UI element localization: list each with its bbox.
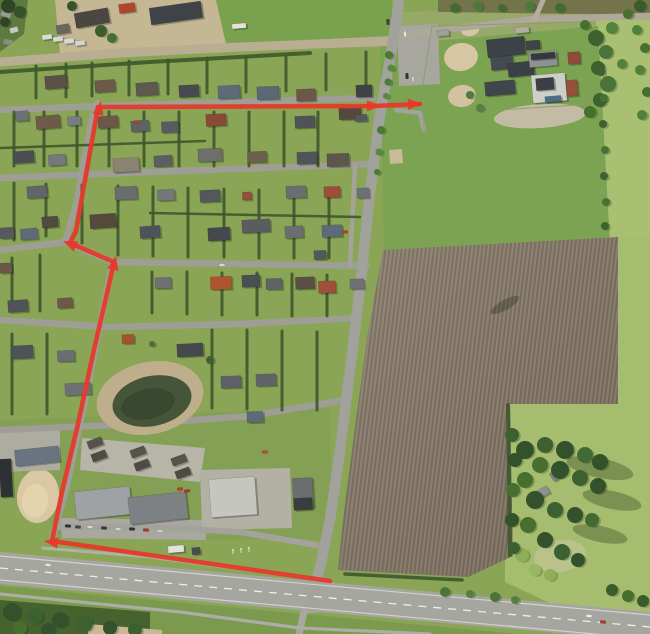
tree (623, 9, 633, 19)
tree (556, 441, 574, 459)
tree (592, 454, 608, 470)
building (266, 278, 282, 290)
building (210, 276, 231, 290)
tree (440, 587, 450, 597)
car (157, 529, 163, 532)
tree (599, 45, 613, 59)
building (242, 192, 251, 200)
tree (95, 25, 107, 37)
building (155, 277, 171, 289)
road-main-road-south (299, 612, 304, 634)
tree (77, 616, 93, 632)
car (45, 563, 51, 566)
building (247, 151, 266, 163)
building (177, 343, 204, 357)
building (242, 219, 271, 233)
building (322, 225, 342, 238)
tree (466, 590, 474, 598)
car (184, 489, 190, 492)
building (90, 213, 117, 229)
car (134, 120, 140, 123)
tree (529, 564, 541, 576)
building (257, 86, 279, 100)
building (208, 227, 231, 241)
tree (597, 68, 605, 76)
building (297, 152, 317, 165)
building (57, 297, 73, 308)
tree (600, 76, 616, 92)
tree (505, 428, 519, 442)
building (221, 376, 241, 389)
tree (511, 596, 519, 604)
tree (3, 603, 21, 621)
building (44, 75, 67, 90)
tree (600, 94, 608, 102)
building (14, 150, 35, 163)
tree (506, 483, 520, 497)
tree (602, 198, 610, 206)
tree (508, 453, 522, 467)
building (247, 411, 263, 423)
building (8, 299, 29, 312)
tree (544, 569, 556, 581)
building (15, 110, 29, 121)
tree (637, 595, 649, 607)
tree (450, 3, 460, 13)
building (200, 189, 221, 202)
car (403, 31, 406, 37)
tree (547, 502, 563, 518)
patch-dirt-square (389, 149, 403, 164)
building (350, 279, 364, 289)
building (324, 186, 340, 198)
tree (567, 507, 583, 523)
building (314, 250, 326, 259)
tree (585, 513, 599, 527)
tree (388, 65, 395, 72)
tree (590, 478, 606, 494)
tree (377, 126, 385, 134)
tree (517, 472, 533, 488)
car (342, 231, 348, 234)
map-viewport (0, 0, 650, 634)
tree (622, 590, 634, 602)
building (113, 157, 140, 172)
car (177, 487, 183, 490)
tree (599, 120, 607, 128)
tree (600, 172, 608, 180)
tree (537, 437, 553, 453)
tree (490, 592, 500, 602)
car (600, 620, 606, 623)
tree (601, 146, 609, 154)
tree (571, 553, 585, 567)
building (566, 80, 578, 97)
building (356, 85, 372, 98)
building (157, 189, 175, 201)
building (35, 114, 60, 129)
flag (240, 548, 242, 550)
tree (149, 341, 155, 347)
building (256, 374, 276, 387)
car (87, 525, 93, 528)
building (48, 154, 66, 166)
tree (635, 65, 645, 75)
building (295, 277, 314, 290)
building (118, 2, 135, 13)
building (67, 116, 81, 126)
building (131, 120, 150, 132)
tree (577, 447, 593, 463)
tree (634, 0, 646, 12)
car (586, 614, 592, 617)
car (386, 19, 389, 25)
building (568, 52, 581, 65)
building (179, 84, 200, 97)
tree (532, 457, 548, 473)
tree (584, 106, 596, 118)
building (218, 85, 241, 99)
tree (554, 544, 570, 560)
aerial-map-canvas[interactable] (0, 0, 650, 634)
tree (640, 43, 650, 53)
building (128, 492, 189, 525)
car (411, 76, 414, 82)
tree (0, 17, 10, 27)
building (192, 547, 201, 555)
tree (206, 356, 214, 364)
building (115, 186, 138, 200)
tree (374, 169, 380, 175)
building (232, 23, 246, 29)
building (355, 114, 367, 122)
tree (52, 612, 68, 628)
flag (232, 549, 234, 551)
building (154, 155, 173, 167)
tree (632, 25, 642, 35)
tree (473, 1, 483, 11)
tree (588, 30, 604, 46)
tree (376, 149, 383, 156)
tree (67, 1, 77, 11)
tree (580, 20, 590, 30)
car (115, 527, 121, 530)
flag (248, 547, 250, 549)
building (484, 80, 515, 97)
tree (551, 461, 569, 479)
building (122, 334, 134, 344)
building (545, 95, 561, 102)
hedge (508, 405, 510, 555)
building (136, 82, 159, 97)
building (286, 186, 306, 199)
building (168, 545, 185, 553)
tree (476, 104, 484, 112)
tree (383, 93, 389, 99)
tree (606, 22, 618, 34)
car (262, 450, 268, 453)
tree (508, 542, 520, 554)
building (0, 227, 14, 239)
tree (505, 513, 519, 527)
tree (601, 222, 609, 230)
car (65, 524, 71, 527)
tree (466, 91, 474, 99)
tree (526, 491, 544, 509)
building (318, 281, 335, 294)
building (206, 113, 227, 126)
car (101, 526, 107, 529)
building (327, 153, 349, 167)
tree (537, 532, 553, 548)
building (242, 275, 260, 288)
tree (107, 33, 117, 43)
building (27, 185, 48, 198)
tree (498, 4, 506, 12)
tree (14, 6, 26, 18)
building (95, 79, 116, 92)
building (526, 40, 541, 50)
tree (606, 584, 618, 596)
building (42, 216, 59, 228)
building (285, 226, 304, 239)
building (198, 148, 223, 162)
building (294, 498, 313, 511)
building (57, 350, 75, 362)
building (295, 116, 315, 129)
building (0, 263, 12, 274)
building (209, 476, 258, 517)
tree (520, 517, 536, 533)
building (536, 77, 555, 91)
tree (617, 59, 627, 69)
car (219, 264, 225, 267)
tree (385, 79, 392, 86)
building (74, 486, 133, 520)
car (75, 525, 81, 528)
building (98, 115, 119, 128)
tree (27, 608, 43, 624)
car (129, 527, 135, 530)
tree (572, 470, 588, 486)
building (515, 26, 529, 33)
car (143, 528, 149, 531)
building (0, 459, 13, 498)
building (20, 228, 38, 240)
building (161, 121, 179, 133)
building (437, 29, 449, 36)
building (357, 188, 369, 198)
building (296, 89, 315, 102)
tree (555, 3, 565, 13)
tree (637, 110, 647, 120)
car (405, 73, 408, 79)
building (11, 345, 34, 359)
building (486, 36, 526, 58)
tree (525, 1, 535, 11)
building (140, 225, 161, 238)
tree (385, 51, 393, 59)
